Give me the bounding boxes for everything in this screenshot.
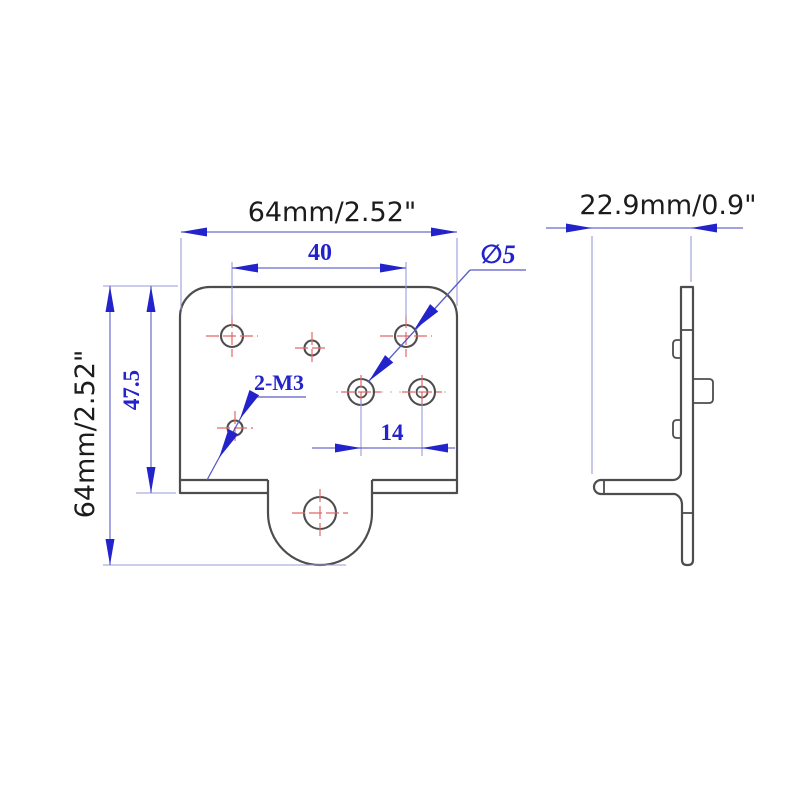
bracket-technical-drawing: 64mm/2.52" 40 64mm/2.52" 47.5 14 [0,0,800,800]
hole-center-small [295,332,329,364]
side-left-tab-2 [673,420,681,438]
dim-total-height: 64mm/2.52" [70,286,346,565]
callout-hole-diameter-label: ∅5 [480,240,515,269]
side-profile-outline [594,287,693,565]
hole-tab [292,489,348,537]
dim-hole-span-top-label: 40 [308,240,332,266]
dim-total-height-label: 64mm/2.52" [70,350,101,519]
arrowhead-hole2 [214,429,238,461]
dim-hole-span-bottom: 14 [312,399,455,456]
arrowhead-bottom [106,539,115,565]
arrowhead-bottom [147,467,156,493]
dim-depth: 22.9mm/0.9" [546,190,757,474]
drawing-canvas: 64mm/2.52" 40 64mm/2.52" 47.5 14 [0,0,800,800]
side-view [594,287,713,565]
dim-total-width-label: 64mm/2.52" [248,197,417,228]
arrowhead-right [431,228,457,237]
hole-counterbore-right [402,375,442,409]
arrowhead-right [422,444,448,453]
callout-hole-diameter: ∅5 [365,240,526,385]
dim-hole-span-top: 40 [232,240,406,320]
arrowhead-right [691,224,717,233]
arrowhead-top [106,286,115,312]
side-left-tab-1 [673,340,681,358]
dim-body-height: 47.5 [119,286,176,493]
arrowhead-right [380,264,406,273]
arrowhead-left [181,228,207,237]
arrowhead-top [147,286,156,312]
dim-depth-label: 22.9mm/0.9" [579,190,756,221]
hole-top-left [206,315,258,357]
dim-hole-span-bottom-label: 14 [381,420,405,445]
arrowhead-left [566,224,592,233]
arrowhead-left [232,264,258,273]
callout-thread-label: 2-M3 [254,370,304,395]
arrowhead-left [335,444,361,453]
callout-thread: 2-M3 [207,370,306,480]
dim-body-height-label: 47.5 [119,370,144,410]
side-right-boss [693,379,713,403]
